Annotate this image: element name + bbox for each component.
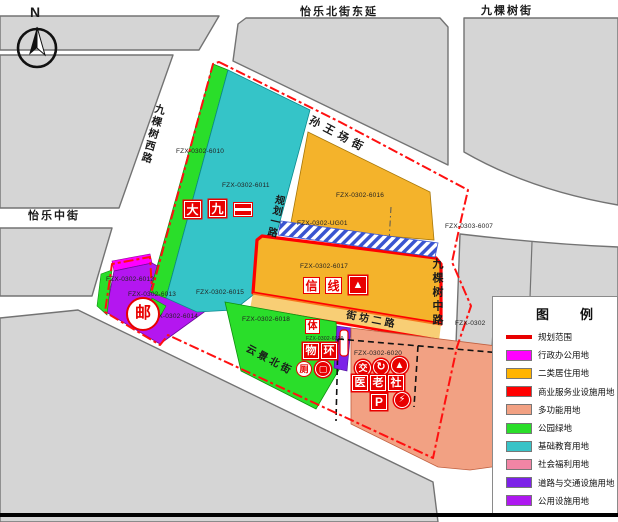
post-emblem-icon: 邮 [126, 297, 160, 331]
logistics-icon: 物 [303, 343, 319, 359]
legend-swatch-education [506, 441, 532, 452]
parcel-code-6016: FZX-0302-6016 [336, 192, 384, 199]
block-left-low [0, 228, 112, 296]
street-label-yile-middle: 怡乐中街 [28, 207, 80, 223]
legend-swatch-admin [506, 350, 532, 361]
legend-row-transport: 道路与交通设施用地 [506, 474, 617, 492]
block-top-right [464, 18, 618, 205]
parcel-code-6012: FZX-0302-6012 [106, 276, 154, 283]
school-bars-icon [234, 203, 252, 216]
legend-swatch-commercial [506, 386, 532, 397]
legend-row-admin: 行政办公用地 [506, 346, 617, 364]
legend-swatch-multiuse [506, 404, 532, 415]
recycle-arrow-icon: ↻ [373, 359, 389, 375]
parcel-code-6007: FZX-0303-6007 [445, 223, 493, 230]
sports-icon: 体 [305, 319, 320, 334]
legend-row-boundary: 规划范围 [506, 328, 617, 346]
waste-station-icon: ▢ [315, 361, 331, 377]
legend-row-multiuse: 多功能用地 [506, 401, 617, 419]
legend-title: 图 例 [536, 304, 617, 323]
parcel-code-6010: FZX-0302-6010 [176, 148, 224, 155]
legend-row-park: 公园绿地 [506, 419, 617, 437]
legend-row-residential: 二类居住用地 [506, 364, 617, 382]
toilet-icon: 厕 [296, 361, 312, 377]
triangle-facility-icon: ▲ [349, 276, 367, 294]
parcel-code-6015: FZX-0302-6015 [196, 289, 244, 296]
legend-row-commercial: 商业服务业设施用地 [506, 383, 617, 401]
line-facility-icon: 线 [325, 277, 342, 294]
white-capsule-marker [340, 330, 348, 356]
parcel-code-6018: FZX-0302-6018 [242, 316, 290, 323]
legend-swatch-residential [506, 368, 532, 379]
kindergarten-triangle-icon: ▲ [391, 357, 408, 374]
parcel-code-6011: FZX-0302-6011 [222, 182, 270, 189]
parking-icon: P [371, 394, 387, 410]
legend-swatch-transport [506, 477, 532, 488]
legend-row-utilities: 公用设施用地 [506, 492, 617, 510]
university-icon: 大 [184, 201, 201, 218]
legend-panel: 图 例 规划范围 行政办公用地 二类居住用地 商业服务业设施用地 多功能用地 公… [492, 296, 618, 514]
compass-n-label: N [30, 4, 40, 20]
legend-row-welfare: 社会福利用地 [506, 455, 617, 473]
legend-swatch-park [506, 423, 532, 434]
legend-row-education: 基础教育用地 [506, 437, 617, 455]
page-bottom-rule [0, 513, 618, 517]
parcel-code-ug01: FZX-0302-UG01 [297, 220, 348, 227]
post-telecom-icon: 信 [303, 277, 320, 294]
traffic-icon: 交 [355, 360, 371, 376]
planning-map: 怡乐北街东延 九棵树街 九棵树西路 怡乐中街 孙王场街 规划一路 九棵树中路 街… [0, 0, 618, 522]
parcel-code-6017: FZX-0302-6017 [300, 263, 348, 270]
parcel-code-6020: FZX-0302-6020 [354, 350, 402, 357]
power-bolt-icon: ⚡ [394, 392, 410, 408]
legend-swatch-boundary [506, 335, 532, 339]
hospital-icon: 医 [352, 375, 368, 391]
parcel-code-0302-partial: FZX-0302 [455, 320, 486, 327]
parcel-code-6019: FZX-0302-6019 [306, 336, 344, 342]
street-label-jiukeshu-middle-rd: 九棵树中路 [429, 258, 445, 328]
community-icon: 社 [388, 375, 404, 391]
legend-swatch-utilities [506, 495, 532, 506]
sanitation-icon: 环 [321, 343, 337, 359]
elderly-care-icon: 老 [370, 375, 386, 391]
school-nine-icon: 九 [209, 200, 226, 217]
street-label-yile-north-ext: 怡乐北街东延 [300, 3, 378, 19]
street-label-jiukeshu-street: 九棵树街 [481, 2, 533, 18]
parcel-code-6013: FZX-0302-6013 [128, 291, 176, 298]
legend-swatch-welfare [506, 459, 532, 470]
